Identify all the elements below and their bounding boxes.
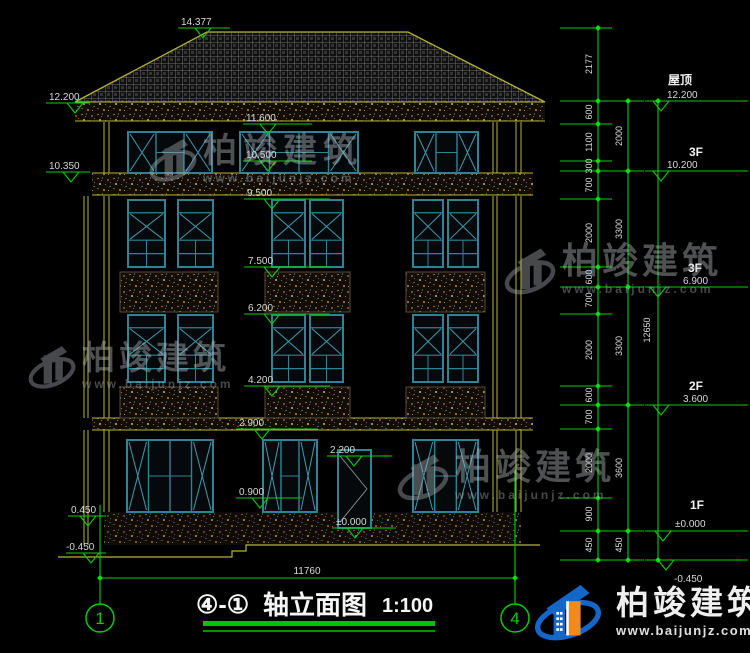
brand-url: www.baijunjz.com bbox=[616, 623, 750, 638]
elevation-marker-text: 9.500 bbox=[247, 188, 272, 199]
elevation-marker-text: 6.200 bbox=[248, 303, 273, 314]
brand-logo: 柏竣建筑 www.baijunjz.com bbox=[528, 576, 750, 648]
chain-dim: 3600 bbox=[614, 458, 624, 478]
title-underline-thick bbox=[203, 621, 435, 626]
elevation-marker-text: 2.200 bbox=[330, 445, 355, 456]
title-text: 轴立面图 bbox=[263, 590, 367, 620]
elevation-marker-text: 11.600 bbox=[246, 113, 276, 124]
building bbox=[58, 32, 545, 557]
chain-dim: 2177 bbox=[584, 54, 594, 74]
floor-elevation: 3.600 bbox=[683, 394, 708, 405]
bottom-width-dim: 11760 bbox=[293, 566, 321, 577]
dimension-chain-2: 2000 3300 3300 3600 450 bbox=[614, 126, 624, 553]
chain-dim: 2000 bbox=[584, 340, 594, 360]
elevation-marker-text: -0.450 bbox=[66, 542, 95, 553]
ground-line bbox=[58, 545, 540, 557]
chain-dim: 1100 bbox=[584, 132, 594, 151]
chain-dim: 600 bbox=[584, 269, 594, 284]
elevation-marker-text: 10.350 bbox=[49, 161, 80, 172]
elevation-marker-text: 14.377 bbox=[181, 17, 212, 28]
chain-dim: 2000 bbox=[584, 453, 594, 473]
floor-label: 3F bbox=[688, 261, 702, 275]
floor-elevation: ±0.000 bbox=[675, 519, 706, 530]
elevation-marker-text: 4.200 bbox=[248, 375, 273, 386]
floor-elevation: 12.200 bbox=[667, 90, 698, 101]
chain-dim: 700 bbox=[584, 292, 594, 307]
left-elevation-markers: 12.200 10.350 0.450 -0.450 bbox=[49, 92, 96, 553]
cornice-band bbox=[92, 173, 533, 195]
elevation-marker-text: 0.900 bbox=[239, 487, 264, 498]
plinth-band bbox=[104, 512, 521, 545]
title-axis-range: ④-① bbox=[196, 591, 249, 619]
floor-elevation: 10.200 bbox=[667, 160, 698, 171]
drawing-canvas: 1 4 14.377 11.600 10.500 9.500 7.500 6.2… bbox=[0, 0, 750, 653]
drawing-title: ④-① 轴立面图 1:100 bbox=[196, 590, 435, 631]
floor-elevation: 6.900 bbox=[683, 276, 708, 287]
chain-dim: 450 bbox=[614, 537, 624, 552]
chain-dim: 3300 bbox=[614, 336, 624, 356]
brand-name: 柏竣建筑 bbox=[616, 586, 750, 619]
floor-label: 3F bbox=[689, 145, 703, 159]
chain-dim: 600 bbox=[584, 104, 594, 119]
eave-band bbox=[75, 102, 545, 121]
chain-dim: 3300 bbox=[614, 219, 624, 239]
chain-dim: 700 bbox=[584, 177, 594, 192]
chain-dim: 700 bbox=[584, 409, 594, 424]
chain-dim: 2000 bbox=[614, 126, 624, 146]
dimension-chain-1: 2177 600 1100 300 700 2000 600 700 2000 … bbox=[584, 54, 594, 553]
hipped-roof bbox=[75, 32, 545, 102]
chain-dim: 600 bbox=[584, 387, 594, 402]
floor-label: 屋顶 bbox=[668, 73, 692, 87]
overall-height-dim: 12650 bbox=[642, 317, 652, 342]
elevation-marker-text: 2.900 bbox=[239, 418, 264, 429]
elevation-marker-text: 10.500 bbox=[246, 150, 277, 161]
cad-elevation-drawing: 1 4 14.377 11.600 10.500 9.500 7.500 6.2… bbox=[0, 0, 750, 653]
elevation-marker-text: 7.500 bbox=[248, 256, 273, 267]
elevation-marker-text: 12.200 bbox=[49, 92, 80, 103]
chain-dim: 450 bbox=[584, 537, 594, 552]
brand-logo-icon bbox=[528, 576, 608, 648]
axis-number-left: 1 bbox=[95, 609, 104, 628]
axis-number-right: 4 bbox=[510, 609, 519, 628]
chain-dim: 300 bbox=[584, 158, 594, 173]
elevation-marker-text: 0.450 bbox=[71, 505, 96, 516]
elevation-marker-text: ±0.000 bbox=[336, 517, 367, 528]
chain-dim: 2000 bbox=[584, 223, 594, 243]
right-floor-markers: 屋顶 12.200 3F 10.200 3F 6.900 2F 3.600 1F… bbox=[667, 73, 708, 585]
floor-label: 2F bbox=[689, 379, 703, 393]
chain-dim: 900 bbox=[584, 506, 594, 521]
title-scale: 1:100 bbox=[382, 595, 433, 617]
floor-label: 1F bbox=[690, 498, 704, 512]
floor-band bbox=[92, 418, 533, 430]
